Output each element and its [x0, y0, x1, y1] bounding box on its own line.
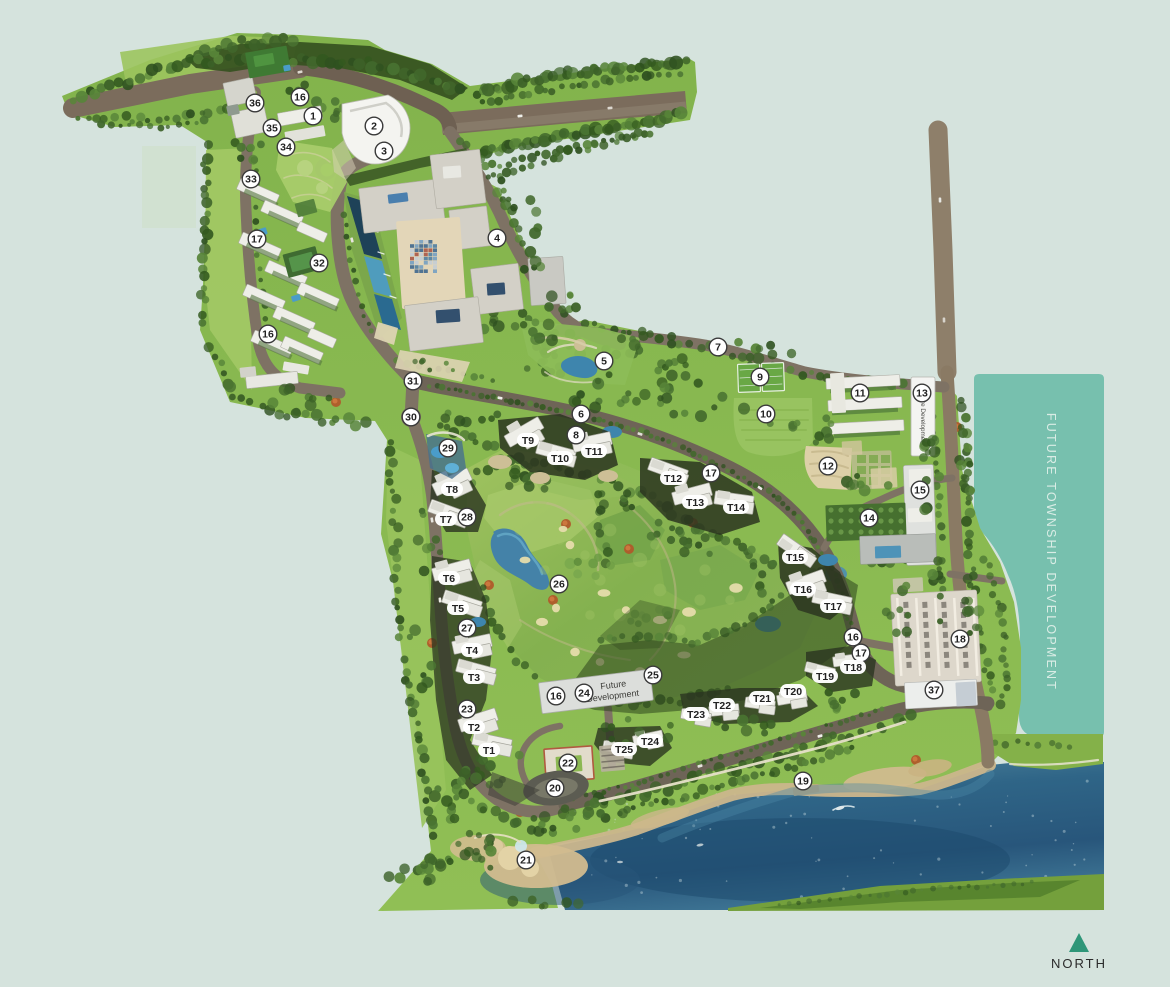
svg-text:37: 37 [928, 685, 940, 697]
svg-text:T11: T11 [585, 446, 603, 458]
svg-text:2: 2 [371, 121, 377, 133]
svg-text:3: 3 [381, 146, 387, 158]
svg-text:16: 16 [262, 329, 274, 341]
svg-text:T17: T17 [824, 601, 842, 613]
svg-text:T7: T7 [440, 514, 452, 526]
svg-text:28: 28 [461, 512, 473, 524]
svg-text:8: 8 [573, 430, 579, 442]
svg-text:32: 32 [313, 258, 325, 270]
svg-text:22: 22 [562, 758, 574, 770]
svg-text:T20: T20 [784, 686, 802, 698]
svg-text:17: 17 [855, 648, 867, 660]
svg-text:24: 24 [578, 688, 590, 700]
svg-text:27: 27 [461, 623, 473, 635]
svg-text:34: 34 [280, 142, 292, 154]
svg-text:11: 11 [854, 388, 865, 400]
svg-text:T8: T8 [446, 484, 458, 496]
svg-text:18: 18 [954, 634, 966, 646]
svg-text:4: 4 [494, 233, 500, 245]
svg-text:T24: T24 [641, 736, 659, 748]
svg-text:35: 35 [266, 123, 278, 135]
svg-text:T14: T14 [727, 502, 745, 514]
svg-text:29: 29 [442, 443, 454, 455]
svg-text:T19: T19 [816, 671, 834, 683]
svg-text:21: 21 [520, 855, 532, 867]
svg-text:1: 1 [310, 111, 316, 123]
svg-text:20: 20 [549, 783, 561, 795]
svg-text:33: 33 [245, 174, 257, 186]
svg-text:26: 26 [553, 579, 565, 591]
svg-text:17: 17 [705, 468, 717, 480]
svg-text:T21: T21 [753, 693, 771, 705]
svg-text:T3: T3 [468, 672, 480, 684]
svg-text:12: 12 [822, 461, 834, 473]
svg-text:T22: T22 [713, 700, 731, 712]
svg-text:T2: T2 [468, 722, 480, 734]
svg-text:T16: T16 [794, 584, 812, 596]
svg-text:19: 19 [797, 776, 809, 788]
svg-text:T12: T12 [664, 473, 682, 485]
svg-text:16: 16 [294, 92, 306, 104]
svg-text:23: 23 [461, 704, 473, 716]
svg-text:15: 15 [914, 485, 926, 497]
svg-text:T23: T23 [687, 709, 705, 721]
svg-text:T13: T13 [686, 497, 704, 509]
svg-text:NORTH: NORTH [1051, 956, 1107, 971]
svg-text:T10: T10 [551, 453, 569, 465]
svg-text:7: 7 [715, 342, 721, 354]
svg-text:FUTURE TOWNSHIP DEVELOPMENT: FUTURE TOWNSHIP DEVELOPMENT [1044, 413, 1058, 691]
svg-text:T18: T18 [844, 662, 862, 674]
svg-text:16: 16 [847, 632, 859, 644]
svg-text:T9: T9 [522, 435, 534, 447]
svg-text:T15: T15 [786, 552, 804, 564]
svg-text:T6: T6 [443, 573, 455, 585]
svg-text:10: 10 [760, 409, 772, 421]
svg-text:13: 13 [916, 388, 928, 400]
svg-text:14: 14 [863, 513, 875, 525]
svg-text:6: 6 [578, 409, 584, 421]
svg-text:17: 17 [251, 234, 263, 246]
svg-text:5: 5 [601, 356, 607, 368]
svg-text:31: 31 [407, 376, 419, 388]
svg-text:T1: T1 [483, 745, 495, 757]
svg-text:T4: T4 [466, 645, 478, 657]
svg-text:25: 25 [647, 670, 659, 682]
svg-text:T5: T5 [452, 603, 464, 615]
svg-text:30: 30 [405, 412, 417, 424]
svg-text:36: 36 [249, 98, 261, 110]
svg-text:16: 16 [550, 691, 562, 703]
svg-text:9: 9 [757, 372, 763, 384]
svg-text:T25: T25 [615, 744, 633, 756]
